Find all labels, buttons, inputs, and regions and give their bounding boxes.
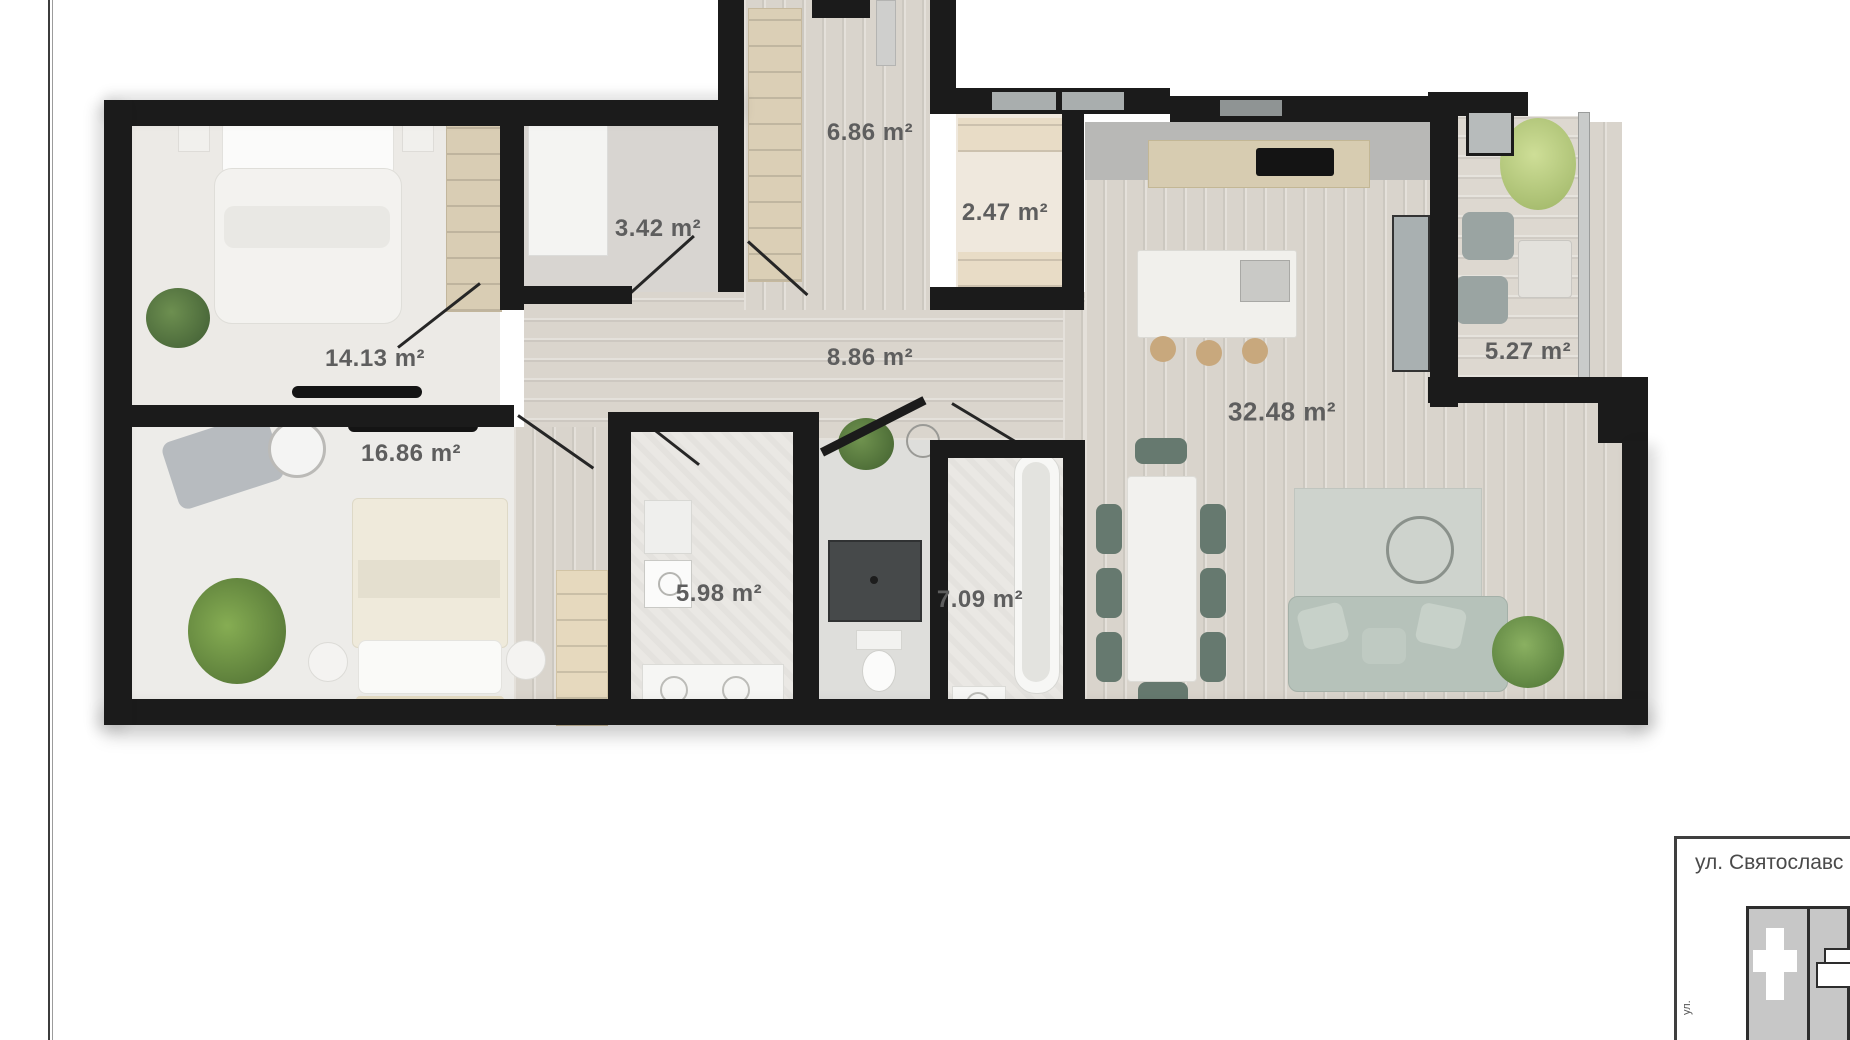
kitchen-top-window [1220, 100, 1282, 116]
balcony-chair-1 [1462, 212, 1514, 260]
round-mirror [268, 420, 326, 478]
wc-bathroom-right-wall [1063, 440, 1085, 725]
pouf-right [506, 640, 546, 680]
potted-plant-bedroom-1 [146, 288, 210, 348]
floor-plan-page: 6.86 m² 3.42 m² 2.47 m² 14.13 m² 8.86 m²… [0, 0, 1850, 1040]
laundry-shelf-bottom [958, 252, 1062, 287]
dining-table [1127, 476, 1197, 682]
area-label-entry-hall: 6.86 m² [827, 119, 913, 147]
balcony-bottom-wall [1428, 377, 1620, 403]
closet-cabinet [528, 106, 608, 256]
pouf-left [308, 642, 348, 682]
wc-bathroom-top-wall [948, 440, 1063, 458]
street-name-side-label: ул. [1681, 1000, 1693, 1015]
bar-stool-3 [1242, 338, 1268, 364]
toilet-tank [856, 630, 902, 650]
bed-2-pillows [358, 640, 502, 694]
area-label-bedroom-1: 14.13 m² [325, 345, 425, 373]
dining-chair [1200, 568, 1226, 618]
potted-plant-living [1492, 616, 1564, 688]
dining-chair [1135, 438, 1187, 464]
bathtub-inner [1022, 462, 1050, 682]
floor-plan: 6.86 m² 3.42 m² 2.47 m² 14.13 m² 8.86 m²… [0, 0, 1850, 1040]
bar-stool-2 [1196, 340, 1222, 366]
laundry-right-wall [1062, 114, 1084, 310]
top-wall-window-1 [992, 92, 1056, 110]
shower-drain [870, 576, 878, 584]
bathroom-cabinet [644, 500, 692, 554]
dining-chair [1096, 568, 1122, 618]
laundry-shelf-top [958, 118, 1062, 152]
balcony-corner-window [1466, 110, 1514, 156]
entry-door-leaf [876, 0, 896, 66]
right-wall [1622, 441, 1648, 725]
bathroom-wc-divider-wall [793, 412, 819, 725]
bed-1-fold [224, 206, 390, 248]
building-notch-step-2 [1816, 962, 1850, 988]
kitchen-balcony-wall [1430, 92, 1458, 407]
bedroom-1-right-wall [500, 126, 524, 310]
balcony-railing [1578, 112, 1590, 380]
bedrooms-divider-wall [104, 405, 514, 427]
entry-hall-left-wall [718, 0, 744, 292]
cooktop [1256, 148, 1334, 176]
bed-2-fold [358, 560, 500, 598]
potted-plant-bedroom-2 [188, 578, 286, 684]
bathroom-left-wall [608, 412, 631, 725]
entry-hall-cabinets [748, 8, 802, 282]
rug-ring-decor [1386, 516, 1454, 584]
area-label-corridor: 8.86 m² [827, 344, 913, 372]
top-wall-left [104, 100, 744, 126]
dining-chair [1200, 504, 1226, 554]
building-courtyard-cross-h [1753, 950, 1797, 972]
closet-bottom-wall [524, 286, 632, 304]
area-label-closet: 3.42 m² [615, 215, 701, 243]
top-wall-kitchen [1170, 96, 1458, 122]
area-label-laundry: 2.47 m² [962, 199, 1048, 227]
toilet-bowl [862, 650, 896, 692]
dining-chair [1200, 632, 1226, 682]
street-name-label: ул. Святославс [1695, 851, 1843, 875]
sofa-pillow [1362, 628, 1406, 664]
tv-console-bedroom-1 [292, 386, 422, 398]
bottom-wall [104, 699, 1648, 725]
bathroom-top-wall [631, 412, 793, 432]
bedroom-1-wardrobe [446, 112, 502, 312]
wc-709-divider-wall [930, 440, 948, 725]
top-wall-window-2 [1062, 92, 1124, 110]
dining-chair [1096, 632, 1122, 682]
area-label-wc-bathroom: 7.09 m² [937, 586, 1023, 614]
entry-hall-right-wall [930, 0, 956, 114]
area-label-living-kitchen: 32.48 m² [1228, 397, 1336, 428]
bar-stool-1 [1150, 336, 1176, 362]
kitchen-balcony-window [1392, 215, 1430, 372]
laundry-bottom-wall [930, 287, 1084, 310]
area-label-balcony: 5.27 m² [1485, 338, 1571, 366]
right-corner-block [1598, 377, 1648, 443]
entry-door-header [812, 0, 870, 18]
dining-chair [1096, 504, 1122, 554]
area-label-bathroom: 5.98 m² [676, 580, 762, 608]
area-label-bedroom-2: 16.86 m² [361, 440, 461, 468]
island-sink [1240, 260, 1290, 302]
balcony-chair-2 [1456, 276, 1508, 324]
balcony-table [1518, 240, 1572, 298]
living-opening-floor [1063, 310, 1085, 440]
